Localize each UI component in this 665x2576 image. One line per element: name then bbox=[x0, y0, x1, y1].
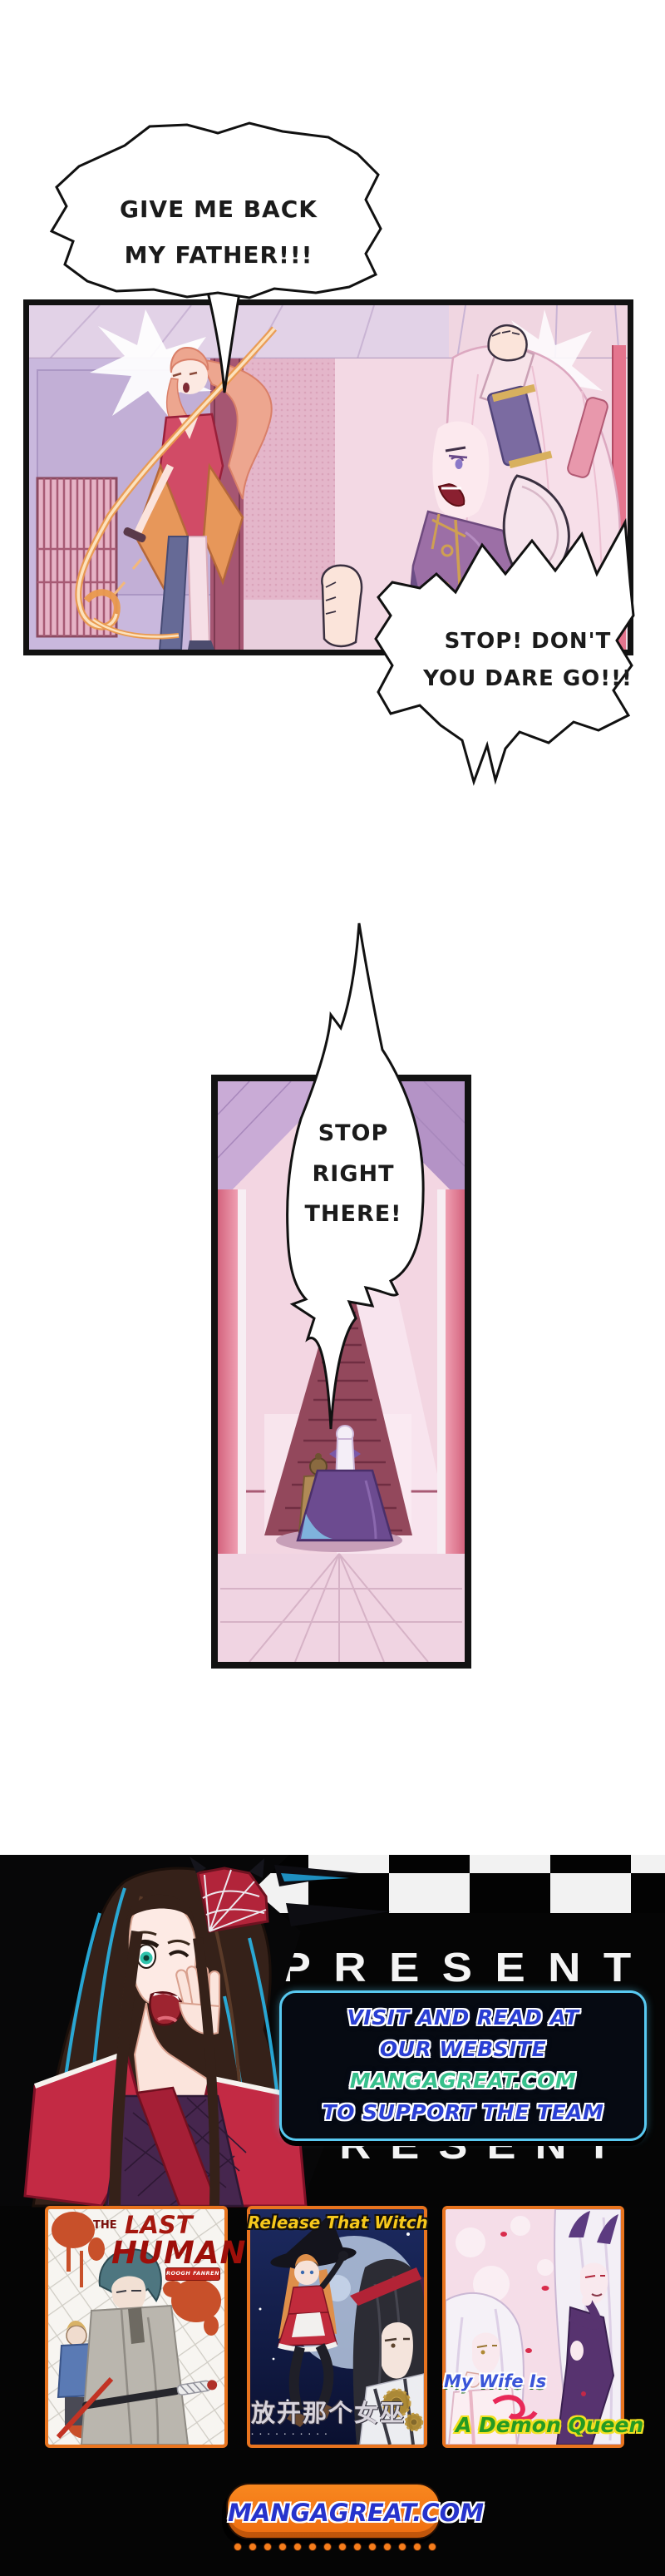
cover3-title-line1: My Wife Is bbox=[444, 2371, 546, 2391]
bubble3-text-line1: STOP bbox=[283, 1122, 424, 1145]
checker-band-row2 bbox=[0, 1873, 665, 1913]
bubble1-text-line1: GIVE ME BACK bbox=[104, 198, 333, 221]
site-button[interactable]: MANGAGREAT.COM bbox=[226, 2483, 441, 2539]
bubble1-text-line2: MY FATHER!!! bbox=[104, 244, 333, 267]
promo-line-1: VISIT AND READ AT bbox=[282, 2002, 644, 2034]
promo-line-2: OUR WEBSITE bbox=[282, 2034, 644, 2065]
robed-figure bbox=[298, 1426, 392, 1540]
cover2-title: Release That Witch bbox=[248, 2213, 427, 2232]
panel-1 bbox=[23, 299, 633, 655]
bubble3-text-line2: RIGHT bbox=[283, 1163, 424, 1185]
demon-queen bbox=[554, 2209, 621, 2445]
present-dash bbox=[259, 1960, 274, 1965]
cover1-title-human: HUMAN bbox=[111, 2235, 246, 2271]
checker-band-row1 bbox=[0, 1855, 665, 1873]
cover2-subtitle-small: · · · · · · · · · · bbox=[251, 2430, 376, 2438]
cover2-subtitle-chinese: 放开那个女巫 bbox=[251, 2394, 417, 2429]
cover3-title-line2: A Demon Queen bbox=[456, 2413, 627, 2437]
present-text-top: PRESENT bbox=[262, 1945, 665, 1992]
button-dot-trim bbox=[234, 2543, 441, 2553]
cover1-title-the: THE bbox=[93, 2219, 117, 2232]
promo-line-4: TO SUPPORT THE TEAM bbox=[282, 2097, 644, 2129]
cover1-author-badge: ROOGH FANREN bbox=[165, 2267, 220, 2281]
woman-character bbox=[122, 348, 272, 650]
cover-my-wife-is-a-demon-queen[interactable] bbox=[442, 2206, 624, 2448]
impact-burst-left bbox=[90, 309, 212, 424]
manga-reader-page: PRESENT PRESENT bbox=[0, 0, 665, 2576]
promo-box[interactable]: VISIT AND READ AT OUR WEBSITE MANGAGREAT… bbox=[279, 1990, 647, 2141]
cover3-art bbox=[446, 2209, 621, 2445]
impact-burst-right bbox=[499, 309, 603, 426]
site-button-label: MANGAGREAT.COM bbox=[228, 2499, 484, 2527]
bubble3-text-line3: THERE! bbox=[283, 1203, 424, 1225]
energy-whip bbox=[78, 329, 274, 637]
promo-line-3: MANGAGREAT.COM bbox=[282, 2065, 644, 2097]
servant-figure bbox=[299, 1453, 336, 1532]
bubble2-text-line1: STOP! DON'T bbox=[399, 630, 657, 652]
bubble2-text-line2: YOU DARE GO!!! bbox=[399, 668, 657, 690]
man-character bbox=[322, 325, 620, 650]
